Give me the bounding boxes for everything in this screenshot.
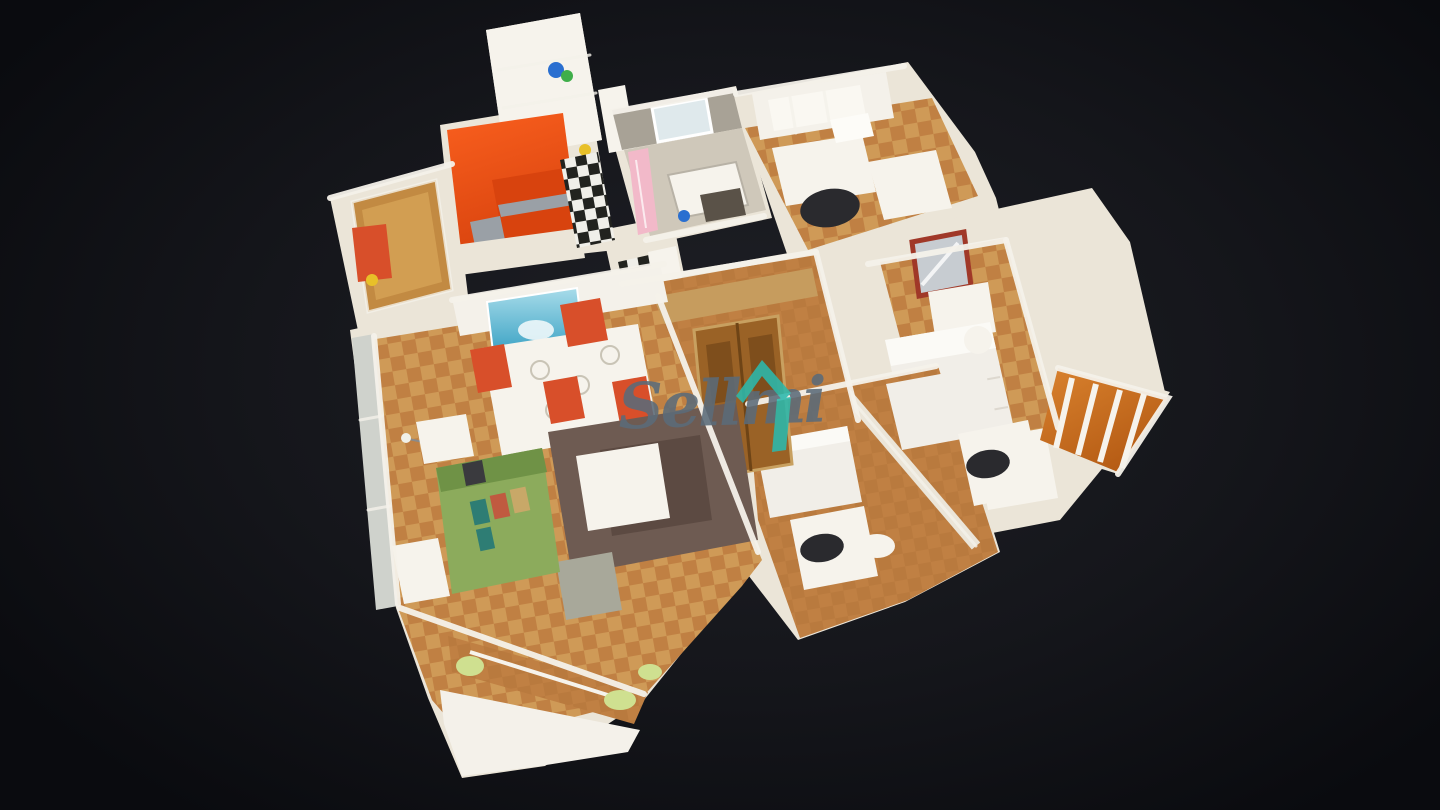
kitchen	[447, 13, 636, 275]
bin	[678, 210, 690, 222]
stool	[859, 534, 895, 558]
plant-3	[638, 664, 662, 680]
plant-1	[456, 656, 484, 676]
viewer-canvas[interactable]: Sellmi	[0, 0, 1440, 810]
coffee-table	[576, 443, 670, 531]
round-table	[964, 326, 992, 354]
toy	[561, 70, 573, 82]
entrance-hall	[352, 180, 452, 312]
dolphin	[518, 320, 554, 340]
tv-bench	[556, 552, 622, 620]
side-table	[416, 414, 474, 464]
plate	[366, 274, 378, 286]
plant-2	[604, 690, 636, 710]
speaker	[462, 460, 486, 486]
dining-chair-1	[560, 298, 608, 347]
entry-chair	[352, 224, 392, 282]
dollhouse-viewport[interactable]	[0, 0, 1440, 810]
